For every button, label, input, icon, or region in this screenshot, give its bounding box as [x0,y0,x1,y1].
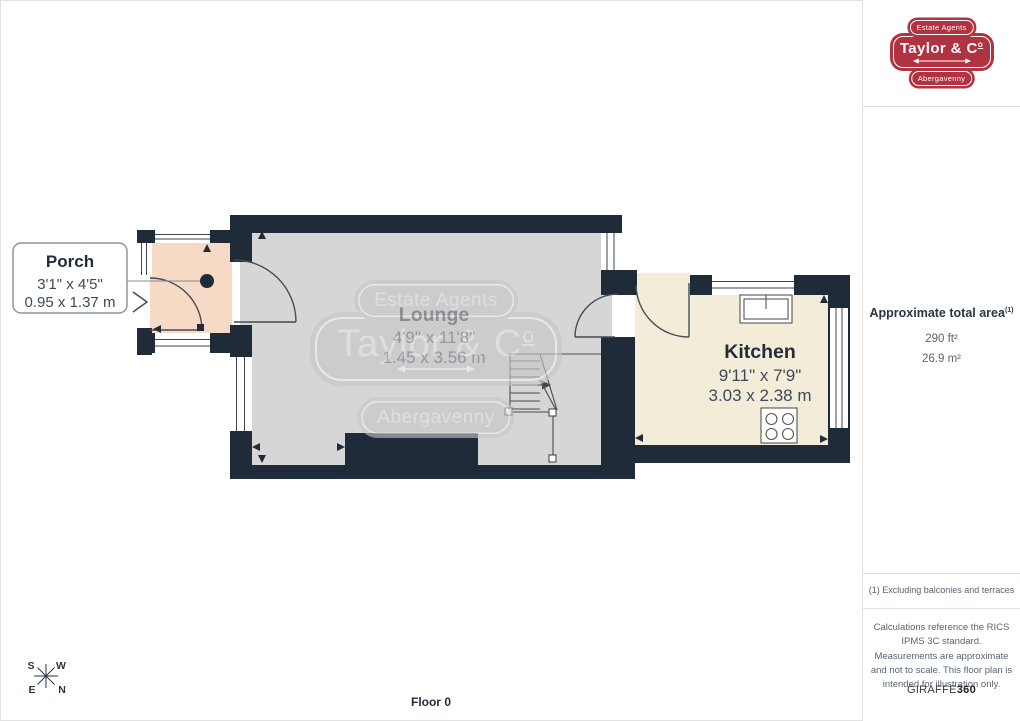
watermark-arrow-icon [336,365,536,373]
giraffe360-credit: GIRAFFE360 [863,684,1020,696]
porch-dim-metric: 0.95 x 1.37 m [25,294,116,311]
watermark-brand: Taylor & Co [337,325,535,363]
porch-bottom-window [155,333,210,353]
sidebar-divider [863,608,1020,609]
kitchen-top-window [712,275,794,295]
kitchen-dim-imperial: 9'11" x 7'9" [719,366,802,385]
disclaimer-text: Calculations reference the RICS IPMS 3C … [871,621,1013,692]
porch-label: Porch [46,252,94,271]
lounge-right-window [601,233,622,270]
compass-w: W [56,660,66,672]
porch-floor [150,241,232,337]
agency-town: Abergavenny [911,71,973,86]
agency-logo: Taylor & Co Estate Agents Abergavenny [890,20,994,86]
watermark-town: Abergavenny [361,401,510,434]
kitchen-label: Kitchen [724,341,796,363]
total-area-block: Approximate total area(1) 290 ft² 26.9 m… [863,306,1020,369]
info-sidebar: Taylor & Co Estate Agents Abergavenny Ap… [862,0,1020,721]
total-area-imperial: 290 ft² [863,329,1020,349]
callout-anchor-dot [200,274,214,288]
compass-s: S [27,660,34,672]
agency-logo-badge: Taylor & Co [890,33,994,71]
watermark-tagline: Estate Agents [358,284,514,317]
compass-icon: S W E N [27,660,66,696]
kitchen-right-window [830,308,848,428]
kitchen-dim-metric: 3.03 x 2.38 m [708,386,811,405]
lounge-left-window [230,357,252,431]
floorplan-canvas: Porch 3'1" x 4'5" 0.95 x 1.37 m Lounge 4… [0,0,862,721]
porch-left-window [137,243,152,275]
area-footnote: (1) Excluding balconies and terraces [863,585,1020,595]
porch-top-window [155,230,210,243]
floor-label: Floor 0 [0,695,862,709]
sink [740,295,792,323]
sidebar-divider [863,106,1020,107]
porch-dim-imperial: 3'1" x 4'5" [37,276,103,293]
total-area-metric: 26.9 m² [863,349,1020,369]
sidebar-divider [863,573,1020,574]
watermark-logo: Taylor & Co Estate Agents Abergavenny [310,284,562,434]
hob [761,408,797,443]
agency-tagline: Estate Agents [909,20,973,35]
entrance-arrow-icon [133,292,147,312]
agency-name: Taylor & Co [900,41,983,56]
watermark-badge: Taylor & Co [310,312,562,386]
total-area-title: Approximate total area(1) [863,306,1020,320]
agency-logo-arrow-icon [910,58,974,64]
floorplan-page: Porch 3'1" x 4'5" 0.95 x 1.37 m Lounge 4… [0,0,1020,721]
